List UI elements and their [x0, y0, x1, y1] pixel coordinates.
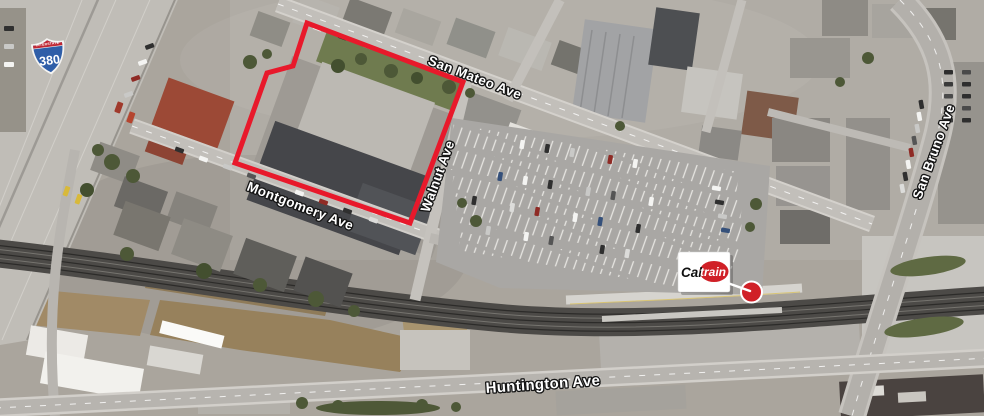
shield-route-number: 380 [38, 52, 60, 68]
station-marker-icon [741, 282, 762, 303]
caltrain-wordmark-suffix: train [700, 265, 726, 279]
aerial-map-svg: San Mateo Ave Montgomery Ave Walnut Ave … [0, 0, 984, 416]
aerial-map-image[interactable]: San Mateo Ave Montgomery Ave Walnut Ave … [0, 0, 984, 416]
